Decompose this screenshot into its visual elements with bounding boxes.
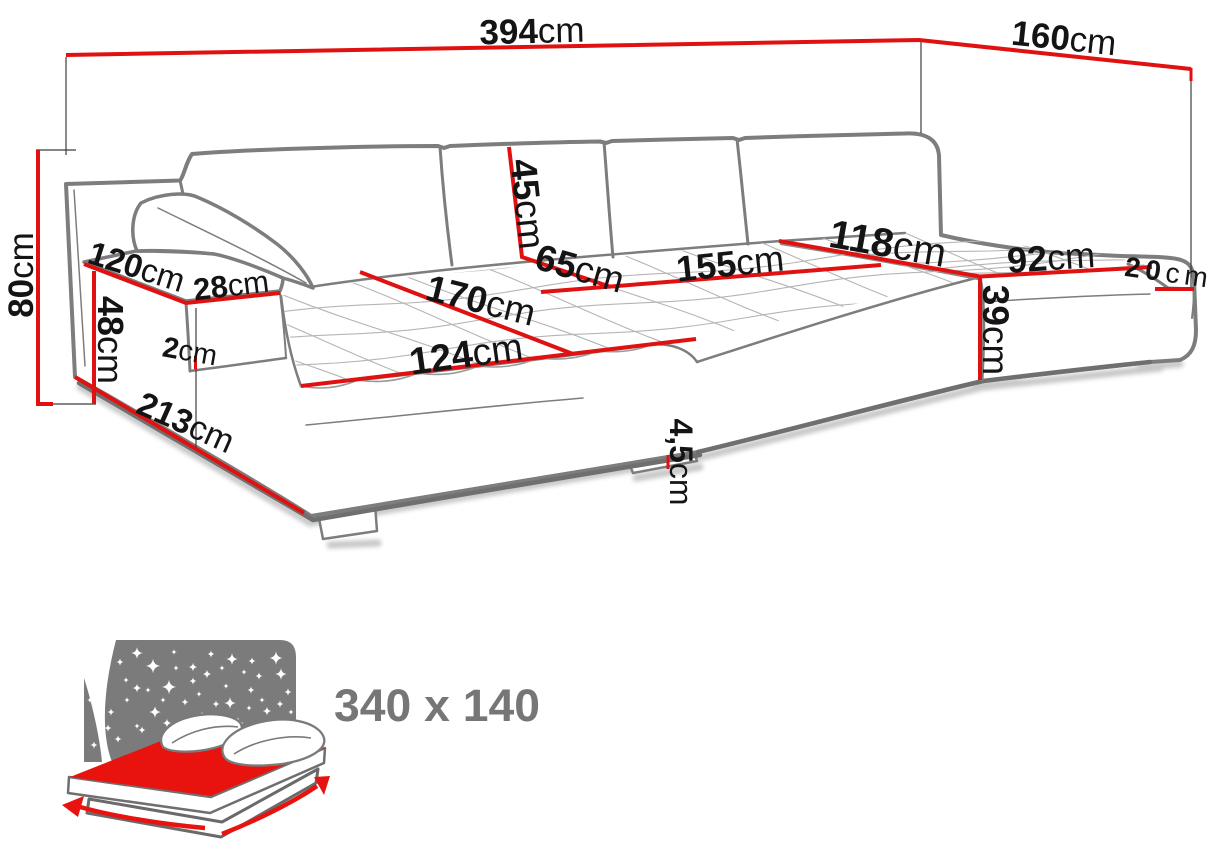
svg-text:39cm: 39cm [975,285,1016,375]
svg-text:160cm: 160cm [1010,14,1119,64]
svg-text:80cm: 80cm [2,232,41,318]
svg-text:340 x 140: 340 x 140 [334,680,540,731]
svg-text:92cm: 92cm [1006,234,1097,281]
svg-text:48cm: 48cm [90,296,131,384]
svg-text:4,5cm: 4,5cm [663,418,699,505]
svg-text:394cm: 394cm [479,11,585,53]
